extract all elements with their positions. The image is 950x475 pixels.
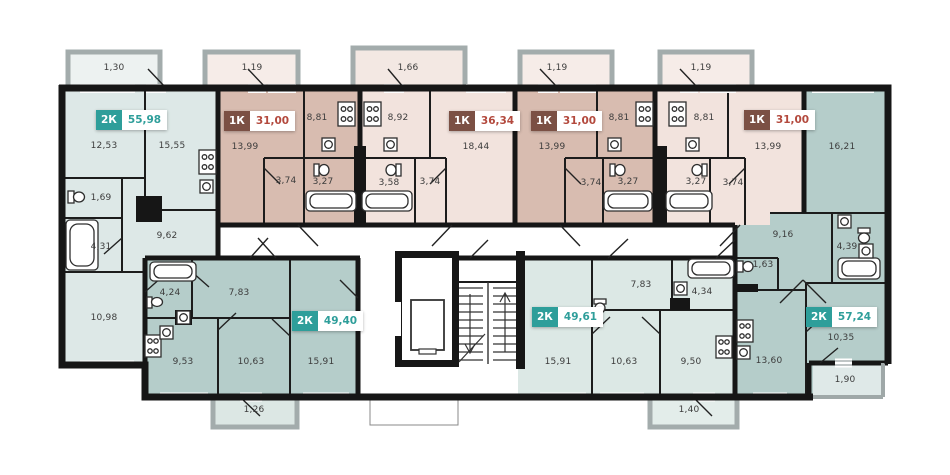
room-area-label: 10,35	[828, 333, 855, 343]
room-area-label: 9,50	[681, 357, 702, 367]
apartment-type: 2К	[532, 307, 558, 327]
room-area-label: 3,74	[420, 177, 441, 187]
room-area-label: 15,55	[159, 141, 186, 151]
balcony-area-label: 1,19	[547, 63, 568, 73]
balcony-area-label: 1,40	[679, 405, 700, 415]
sink-icon	[737, 346, 750, 359]
room-area-label: 8,81	[609, 113, 630, 123]
entrance-porch	[370, 399, 458, 425]
apartment-total-area: 31,00	[250, 111, 295, 131]
sink-icon	[686, 138, 699, 151]
toilet-icon	[147, 297, 163, 308]
sink-icon	[200, 180, 213, 193]
apartment-badge[interactable]: 2К 49,40	[292, 311, 363, 331]
apartment-regions	[62, 88, 888, 397]
room-area-label: 3,74	[723, 178, 744, 188]
room-area-label: 1,63	[753, 260, 774, 270]
toilet-icon	[692, 164, 707, 176]
room-area-label: 12,53	[91, 141, 118, 151]
room-area-label: 10,63	[238, 357, 265, 367]
toilet-icon	[314, 164, 329, 176]
sink-icon	[384, 138, 397, 151]
apartment-badge[interactable]: 1К 36,34	[449, 111, 520, 131]
apartment-total-area: 49,61	[558, 307, 603, 327]
room-area-label: 3,27	[313, 177, 334, 187]
bathtub-icon	[666, 191, 712, 211]
stove-icon	[716, 336, 732, 358]
bathtub-icon	[604, 191, 652, 211]
balcony-area-label: 1,66	[398, 63, 419, 73]
apartment-total-area: 55,98	[122, 110, 167, 130]
room-area-label: 3,74	[276, 176, 297, 186]
apartment-badge[interactable]: 1К 31,00	[744, 110, 815, 130]
room-area-label: 3,58	[379, 178, 400, 188]
room-area-label: 7,83	[631, 280, 652, 290]
bathtub-icon	[838, 258, 880, 279]
balcony-area-label: 1,30	[104, 63, 125, 73]
apartment-type: 2К	[292, 311, 318, 331]
apartment-type: 1К	[744, 110, 770, 130]
room-area-label: 4,31	[91, 242, 112, 252]
room-area-label: 4,34	[692, 287, 713, 297]
washer-icon	[674, 282, 687, 295]
apartment-type: 1К	[531, 111, 557, 131]
room-area-label: 3,27	[686, 177, 707, 187]
apartment-total-area: 36,34	[475, 111, 520, 131]
room-area-label: 1,69	[91, 193, 112, 203]
apartment-total-area: 31,00	[557, 111, 602, 131]
stove-icon	[199, 150, 216, 174]
floor-plan-drawing	[0, 0, 950, 475]
room-area-label: 16,21	[829, 142, 856, 152]
room-area-label: 10,98	[91, 313, 118, 323]
washer-icon	[859, 244, 873, 258]
room-area-label: 8,81	[307, 113, 328, 123]
apartment-badge[interactable]: 1К 31,00	[531, 111, 602, 131]
sink-icon	[838, 215, 851, 228]
bathtub-icon	[688, 259, 734, 278]
balcony-area-label: 1,19	[242, 63, 263, 73]
washer-icon	[177, 311, 190, 324]
apartment-badge[interactable]: 2К 57,24	[806, 307, 877, 327]
balcony-area-label: 1,26	[244, 405, 265, 415]
room-area-label: 7,83	[229, 288, 250, 298]
room-area-label: 1,90	[835, 375, 856, 385]
toilet-icon	[610, 164, 625, 176]
apartment-total-area: 57,24	[832, 307, 877, 327]
room-area-label: 9,62	[157, 231, 178, 241]
stove-icon	[669, 102, 686, 126]
stove-icon	[737, 320, 753, 342]
apartment-8-region[interactable]	[518, 258, 735, 397]
room-area-label: 4,24	[160, 288, 181, 298]
apartment-type: 1К	[224, 111, 250, 131]
apartment-badge[interactable]: 2К 55,98	[96, 110, 167, 130]
apartment-type: 1К	[449, 111, 475, 131]
stove-icon	[364, 102, 381, 126]
sink-icon	[322, 138, 335, 151]
toilet-icon	[737, 261, 753, 272]
apartment-total-area: 31,00	[770, 110, 815, 130]
apartment-badge[interactable]: 2К 49,61	[532, 307, 603, 327]
room-area-label: 15,91	[545, 357, 572, 367]
room-area-label: 3,74	[581, 178, 602, 188]
stove-icon	[636, 102, 653, 126]
toilet-icon	[858, 228, 870, 243]
stairs-up-arrow	[500, 293, 510, 352]
room-area-label: 13,99	[232, 142, 259, 152]
apartment-badge[interactable]: 1К 31,00	[224, 111, 295, 131]
stairs-icon	[459, 282, 516, 364]
sink-icon	[160, 326, 173, 339]
bathtub-icon	[306, 191, 356, 211]
room-area-label: 8,92	[388, 113, 409, 123]
toilet-icon	[68, 191, 85, 203]
apartment-total-area: 49,40	[318, 311, 363, 331]
sink-icon	[608, 138, 621, 151]
stove-icon	[338, 102, 355, 126]
room-area-label: 9,53	[173, 357, 194, 367]
floor-plan: 1,30 12,53 15,55 1,69 4,31 9,62 10,98 1,…	[0, 0, 950, 475]
room-area-label: 9,16	[773, 230, 794, 240]
stove-icon	[145, 335, 161, 357]
balcony-area-label: 1,19	[691, 63, 712, 73]
room-area-label: 10,63	[611, 357, 638, 367]
apartment-type: 2К	[806, 307, 832, 327]
room-area-label: 13,99	[755, 142, 782, 152]
toilet-icon	[386, 164, 401, 176]
room-area-label: 18,44	[463, 142, 490, 152]
bathtub-icon	[362, 191, 412, 211]
room-area-label: 8,81	[694, 113, 715, 123]
apartment-type: 2К	[96, 110, 122, 130]
room-area-label: 13,99	[539, 142, 566, 152]
room-area-label: 15,91	[308, 357, 335, 367]
room-area-label: 4,39	[837, 242, 858, 252]
room-area-label: 3,27	[618, 177, 639, 187]
room-area-label: 13,60	[756, 356, 783, 366]
bathtub-icon	[150, 262, 196, 281]
